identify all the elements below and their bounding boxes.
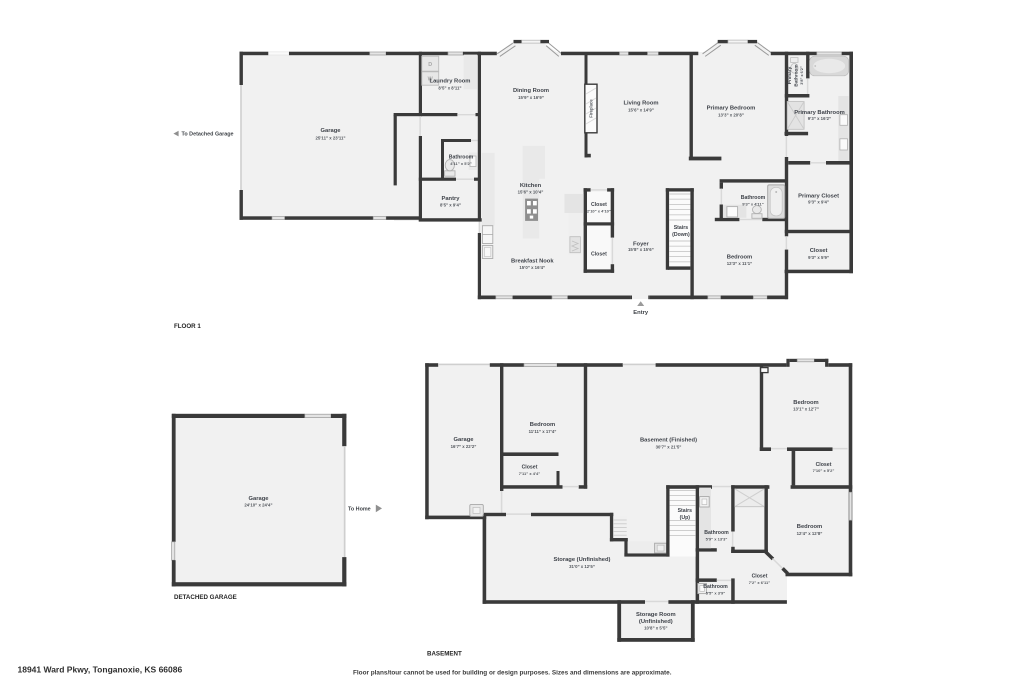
svg-text:Bedroom: Bedroom: [530, 422, 555, 428]
svg-text:Primary Bedroom: Primary Bedroom: [707, 105, 756, 111]
svg-text:2’10” x 4’10”: 2’10” x 4’10”: [587, 208, 611, 213]
svg-text:(Unfinished): (Unfinished): [639, 619, 673, 625]
svg-text:FLOOR 1: FLOOR 1: [174, 323, 201, 330]
svg-text:Garage: Garage: [321, 128, 342, 134]
svg-text:Basement (Finished): Basement (Finished): [640, 438, 697, 444]
svg-text:To Detached Garage: To Detached Garage: [182, 132, 234, 138]
svg-text:7’2” x 6’11”: 7’2” x 6’11”: [749, 580, 771, 585]
svg-text:Breakfast Nook: Breakfast Nook: [511, 258, 554, 264]
svg-text:15’8” x 15’6”: 15’8” x 15’6”: [628, 247, 654, 252]
svg-text:Entry: Entry: [633, 310, 649, 316]
svg-text:9’3” x 5’9”: 9’3” x 5’9”: [808, 255, 829, 260]
svg-text:12’4” x 12’8”: 12’4” x 12’8”: [797, 531, 823, 536]
svg-text:Bedroom: Bedroom: [727, 254, 752, 260]
svg-text:Dining Room: Dining Room: [513, 88, 549, 94]
svg-text:Living Room: Living Room: [623, 100, 658, 106]
svg-text:3’8” x 6’2”: 3’8” x 6’2”: [800, 66, 804, 85]
svg-text:25’11” x 23’11”: 25’11” x 23’11”: [315, 135, 345, 140]
svg-text:10’8” x 5’5”: 10’8” x 5’5”: [644, 626, 667, 631]
svg-text:Bathroom: Bathroom: [704, 530, 729, 536]
svg-text:4’11” x 5’2”: 4’11” x 5’2”: [450, 161, 472, 166]
svg-text:To Home: To Home: [348, 507, 371, 513]
svg-text:16’7” x 22’2”: 16’7” x 22’2”: [451, 444, 477, 449]
svg-text:Primary Bathroom: Primary Bathroom: [794, 110, 845, 116]
svg-text:15’6” x 10’4”: 15’6” x 10’4”: [518, 189, 544, 194]
svg-text:Closet: Closet: [591, 252, 607, 258]
svg-text:Garage: Garage: [249, 496, 270, 502]
svg-text:Closet: Closet: [816, 462, 832, 468]
svg-text:Storage (Unfinished): Storage (Unfinished): [553, 557, 610, 563]
svg-text:Primary: Primary: [787, 66, 792, 84]
svg-text:Storage Room: Storage Room: [636, 612, 676, 618]
svg-text:5’5” x 3’9”: 5’5” x 3’9”: [706, 590, 726, 595]
svg-text:Laundry Room: Laundry Room: [430, 78, 471, 84]
svg-text:(Down): (Down): [672, 232, 690, 238]
svg-text:18941 Ward Pkwy, Tonganoxie, K: 18941 Ward Pkwy, Tonganoxie, KS 66086: [18, 665, 183, 675]
svg-text:8’5” x 9’4”: 8’5” x 9’4”: [440, 202, 461, 207]
svg-text:30’7” x 21’5”: 30’7” x 21’5”: [656, 444, 682, 449]
svg-text:Closet: Closet: [752, 573, 768, 579]
svg-text:9’3” x 16’2”: 9’3” x 16’2”: [808, 116, 831, 121]
svg-text:Floor plans/tour cannot be use: Floor plans/tour cannot be used for buil…: [353, 670, 672, 677]
svg-text:BASEMENT: BASEMENT: [427, 651, 462, 658]
svg-text:11’11” x 17’4”: 11’11” x 17’4”: [529, 429, 557, 434]
svg-text:Fireplace: Fireplace: [589, 99, 594, 118]
svg-text:Bathroom: Bathroom: [703, 584, 728, 590]
svg-text:7’11” x 4’4”: 7’11” x 4’4”: [519, 471, 541, 476]
svg-text:(Up): (Up): [680, 515, 691, 521]
svg-text:7’10” x 5’2”: 7’10” x 5’2”: [813, 468, 835, 473]
svg-text:Stairs: Stairs: [678, 508, 693, 514]
svg-text:13’1” x 12’7”: 13’1” x 12’7”: [793, 407, 819, 412]
svg-text:Closet: Closet: [810, 248, 828, 254]
svg-text:Bedroom: Bedroom: [793, 400, 818, 406]
svg-text:Bathroom: Bathroom: [741, 195, 766, 201]
svg-text:DETACHED GARAGE: DETACHED GARAGE: [174, 594, 237, 601]
svg-text:Kitchen: Kitchen: [520, 183, 542, 189]
svg-text:Stairs: Stairs: [674, 225, 689, 231]
svg-text:9’3” x 4’11”: 9’3” x 4’11”: [742, 201, 764, 206]
svg-text:Bathroom: Bathroom: [793, 64, 798, 86]
svg-text:Bedroom: Bedroom: [797, 524, 822, 530]
svg-text:Closet: Closet: [522, 464, 538, 470]
svg-text:15’0” x 16’4”: 15’0” x 16’4”: [519, 265, 545, 270]
svg-text:Pantry: Pantry: [441, 196, 460, 202]
svg-text:15’6” x 14’9”: 15’6” x 14’9”: [628, 107, 654, 112]
svg-text:8’5” x 8’11”: 8’5” x 8’11”: [438, 85, 461, 90]
svg-text:5’9” x 13’3”: 5’9” x 13’3”: [706, 536, 728, 541]
svg-text:9’3” x 9’4”: 9’3” x 9’4”: [808, 199, 829, 204]
svg-text:Closet: Closet: [591, 202, 607, 208]
svg-text:31’0” x 12’5”: 31’0” x 12’5”: [569, 564, 595, 569]
svg-text:15’9” x 16’9”: 15’9” x 16’9”: [518, 95, 544, 100]
svg-text:24’10” x 24’4”: 24’10” x 24’4”: [244, 503, 272, 508]
svg-text:13’3” x 20’8”: 13’3” x 20’8”: [718, 112, 744, 117]
svg-text:D: D: [428, 62, 432, 68]
svg-text:12’3” x 11’1”: 12’3” x 11’1”: [727, 261, 753, 266]
svg-text:Garage: Garage: [454, 437, 475, 443]
svg-text:Bathroom: Bathroom: [449, 155, 474, 161]
